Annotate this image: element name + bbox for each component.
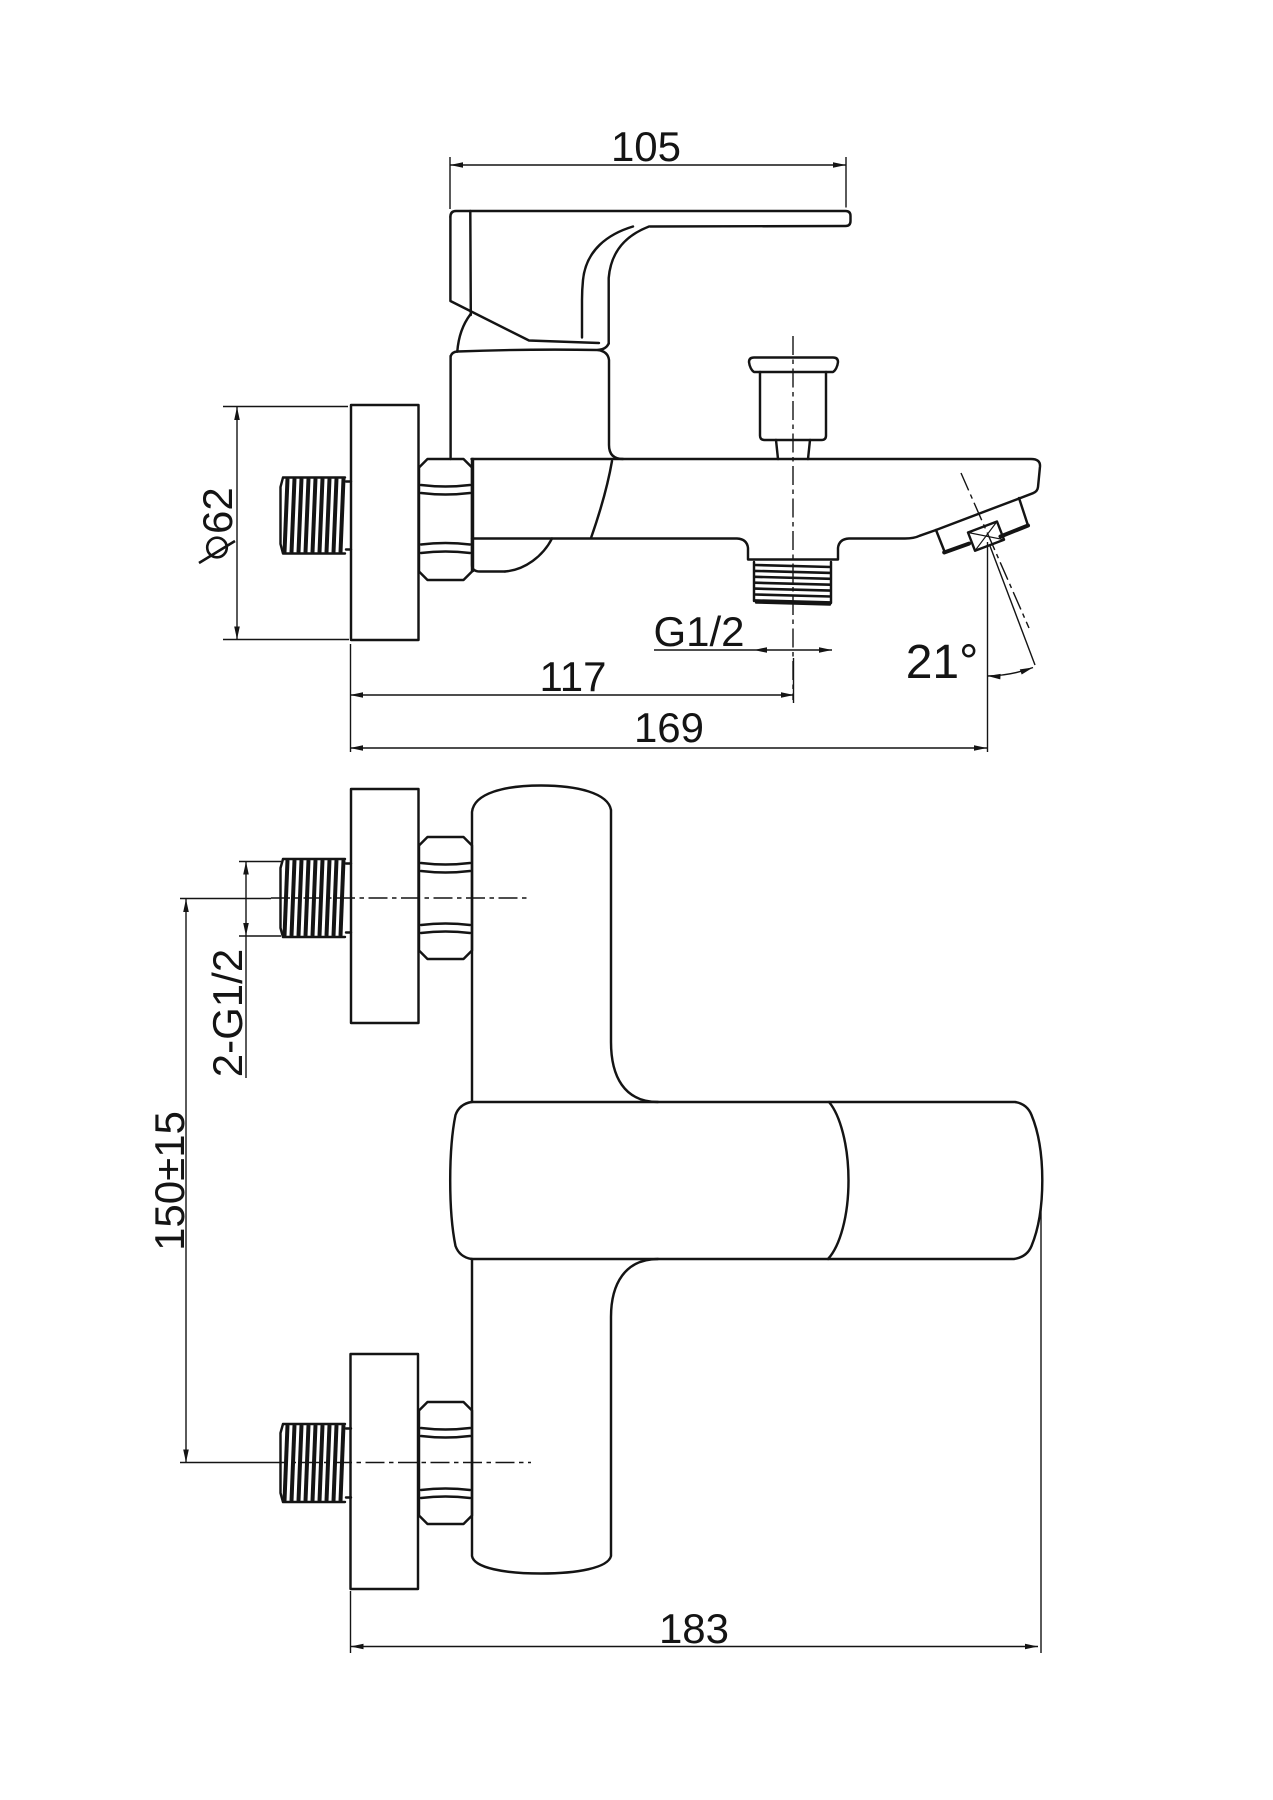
svg-text:G1/2: G1/2 — [653, 608, 744, 655]
svg-text:62: 62 — [194, 487, 241, 534]
svg-text:117: 117 — [540, 653, 607, 700]
svg-text:2-G1/2: 2-G1/2 — [204, 949, 251, 1077]
svg-text:150±15: 150±15 — [146, 1111, 193, 1251]
svg-text:105: 105 — [611, 123, 681, 170]
svg-text:169: 169 — [634, 704, 704, 751]
svg-text:183: 183 — [659, 1605, 729, 1652]
svg-text:21°: 21° — [906, 636, 979, 689]
